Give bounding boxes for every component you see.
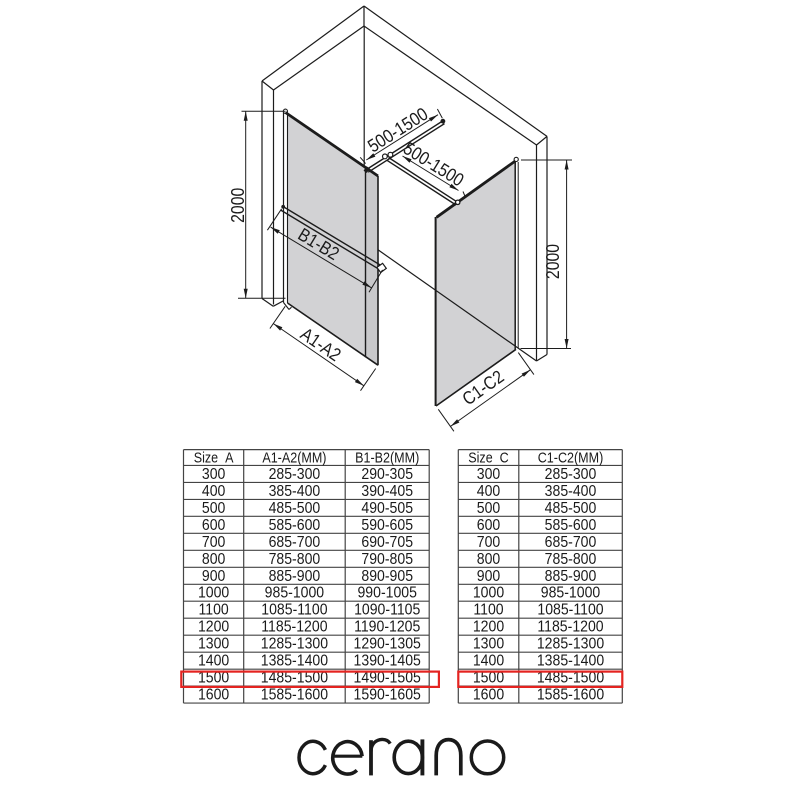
- svg-text:590-605: 590-605: [361, 516, 413, 534]
- svg-text:1585-1600: 1585-1600: [537, 686, 604, 704]
- svg-text:285-300: 285-300: [269, 465, 321, 483]
- svg-text:1385-1400: 1385-1400: [261, 652, 328, 670]
- svg-text:1400: 1400: [473, 652, 504, 670]
- svg-text:1285-1300: 1285-1300: [261, 635, 328, 653]
- svg-text:790-805: 790-805: [361, 550, 413, 568]
- svg-text:800: 800: [477, 550, 500, 568]
- svg-text:890-905: 890-905: [361, 567, 413, 585]
- svg-text:500: 500: [202, 499, 225, 517]
- svg-text:1400: 1400: [198, 652, 229, 670]
- svg-text:1390-1405: 1390-1405: [354, 652, 421, 670]
- svg-text:385-400: 385-400: [545, 482, 597, 500]
- svg-text:985-1000: 985-1000: [541, 584, 600, 602]
- svg-text:1085-1100: 1085-1100: [537, 601, 603, 619]
- svg-text:1000: 1000: [198, 584, 229, 602]
- svg-text:A1-A2(MM): A1-A2(MM): [262, 449, 326, 465]
- svg-text:985-1000: 985-1000: [265, 584, 324, 602]
- svg-text:C1-C2(MM): C1-C2(MM): [538, 449, 604, 465]
- svg-text:900: 900: [202, 567, 225, 585]
- svg-text:390-405: 390-405: [361, 482, 413, 500]
- svg-text:1085-1100: 1085-1100: [261, 601, 327, 619]
- svg-text:290-305: 290-305: [361, 465, 413, 483]
- svg-text:1385-1400: 1385-1400: [537, 652, 604, 670]
- svg-text:700: 700: [477, 533, 500, 551]
- svg-text:785-800: 785-800: [545, 550, 597, 568]
- svg-text:1190-1205: 1190-1205: [354, 618, 420, 636]
- svg-text:585-600: 585-600: [269, 516, 321, 534]
- svg-text:300: 300: [202, 465, 225, 483]
- svg-text:Size C: Size C: [468, 449, 509, 465]
- svg-text:690-705: 690-705: [361, 533, 413, 551]
- svg-text:600: 600: [202, 516, 225, 534]
- svg-text:500: 500: [477, 499, 500, 517]
- svg-text:485-500: 485-500: [269, 499, 321, 517]
- svg-text:1590-1605: 1590-1605: [354, 686, 421, 704]
- svg-text:1185-1200: 1185-1200: [537, 618, 603, 636]
- svg-text:785-800: 785-800: [269, 550, 321, 568]
- svg-text:300: 300: [477, 465, 500, 483]
- svg-text:1585-1600: 1585-1600: [261, 686, 328, 704]
- svg-text:490-505: 490-505: [361, 499, 413, 517]
- svg-text:585-600: 585-600: [545, 516, 597, 534]
- svg-text:1300: 1300: [198, 635, 229, 653]
- svg-text:1100: 1100: [198, 601, 228, 619]
- svg-text:385-400: 385-400: [269, 482, 321, 500]
- svg-text:685-700: 685-700: [545, 533, 597, 551]
- svg-text:885-900: 885-900: [545, 567, 597, 585]
- svg-text:700: 700: [202, 533, 225, 551]
- svg-text:600: 600: [477, 516, 500, 534]
- svg-text:485-500: 485-500: [545, 499, 597, 517]
- svg-text:1000: 1000: [473, 584, 504, 602]
- svg-text:685-700: 685-700: [269, 533, 321, 551]
- svg-text:285-300: 285-300: [545, 465, 597, 483]
- svg-text:900: 900: [477, 567, 500, 585]
- svg-text:B1-B2(MM): B1-B2(MM): [355, 449, 419, 465]
- svg-text:1200: 1200: [473, 618, 504, 636]
- svg-text:1200: 1200: [198, 618, 229, 636]
- svg-text:1600: 1600: [473, 686, 504, 704]
- svg-text:1185-1200: 1185-1200: [261, 618, 327, 636]
- svg-text:1300: 1300: [473, 635, 504, 653]
- svg-text:1090-1105: 1090-1105: [354, 601, 420, 619]
- svg-text:2000: 2000: [227, 188, 248, 223]
- svg-text:1600: 1600: [198, 686, 229, 704]
- svg-text:1285-1300: 1285-1300: [537, 635, 604, 653]
- svg-text:400: 400: [202, 482, 225, 500]
- svg-text:1290-1305: 1290-1305: [354, 635, 421, 653]
- svg-text:Size A: Size A: [194, 449, 235, 465]
- svg-text:400: 400: [477, 482, 500, 500]
- svg-text:2000: 2000: [542, 244, 563, 279]
- svg-text:800: 800: [202, 550, 225, 568]
- svg-text:990-1005: 990-1005: [357, 584, 416, 602]
- svg-text:885-900: 885-900: [269, 567, 321, 585]
- svg-text:1100: 1100: [473, 601, 503, 619]
